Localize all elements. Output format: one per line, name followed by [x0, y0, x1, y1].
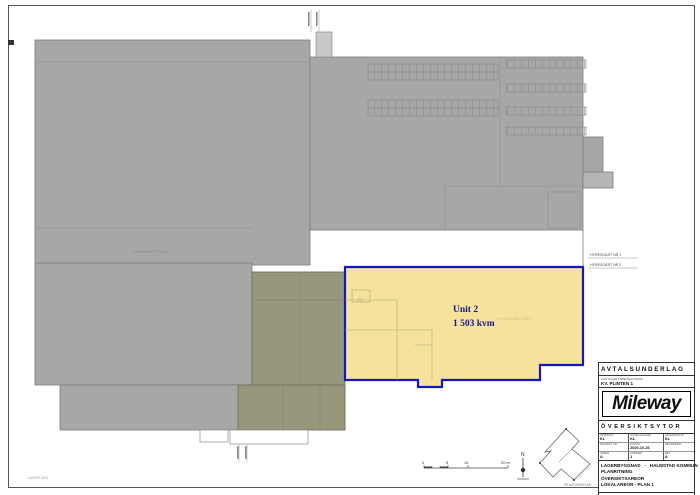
- cell-value: KL: [665, 437, 693, 441]
- tenant-legend: HYRESGÄST NR 1 HYRESGÄST NR 2: [588, 253, 638, 268]
- bottom-dimension-marks: [237, 444, 247, 462]
- grid-cell: PROJEKT NR: [599, 443, 629, 452]
- logo-box: Mileway: [599, 388, 694, 421]
- mileway-logo: Mileway: [602, 391, 691, 417]
- legend-row-2: HYRESGÄST NR 2: [590, 263, 621, 267]
- grid-cell: DATUM 2020-10-26: [629, 443, 664, 452]
- east-annex: [583, 172, 613, 188]
- title-block: AVTALSUNDERLAG FASTIGHETSBETECKNING KV. …: [598, 362, 695, 495]
- scale-tick-5: 5: [446, 460, 449, 465]
- annex-area-lower: [238, 385, 345, 430]
- property-designation: FASTIGHETSBETECKNING KV. PLINTEN 1: [599, 376, 694, 389]
- tenant-label-area2: HYRESGÄST NR 2: [497, 316, 533, 321]
- unit2-name: Unit 2: [453, 304, 495, 318]
- scale-tick-0: 0: [422, 460, 425, 465]
- unit2-label: Unit 2 1 503 kvm: [453, 304, 495, 332]
- cell-value: 2020-10-26: [630, 446, 662, 450]
- grid-cell: REVIDERING: [664, 443, 694, 452]
- description-line: LAGERBYGGNAD - HALMSTAD KOMMUN: [601, 463, 692, 470]
- description-line: LOKALAREOR - PLAN 1: [601, 482, 692, 489]
- cell-label: REVIDERING: [665, 443, 693, 446]
- annex-area-upper: [252, 272, 345, 385]
- section-title: ÖVERSIKTSYTOR: [599, 421, 694, 434]
- top-dimension-marks: [308, 10, 319, 32]
- document-type: AVTALSUNDERLAG: [599, 363, 694, 376]
- grid-cell: GRANSKAD AV KL: [664, 434, 694, 443]
- cell-label: PROJEKT NR: [600, 443, 627, 446]
- scale-tick-10: 10: [464, 460, 469, 465]
- grid-cell: NUMMER 1: [629, 452, 664, 460]
- building-mass-northwest: [35, 40, 310, 265]
- titleblock-grid: UPPDRAG KL HANDLÄGGARE KL GRANSKAD AV KL…: [599, 434, 694, 461]
- property-value: KV. PLINTEN 1: [601, 381, 692, 386]
- roof-structure: [316, 32, 332, 57]
- building-mass-southwest: [35, 263, 252, 385]
- scale-bar: 0 5 10 20 m: [422, 460, 511, 468]
- description-line: PLANRITNING: [601, 469, 692, 476]
- cell-value: A: [600, 455, 627, 459]
- scale-tick-20m: 20 m: [501, 460, 511, 465]
- building-mass-northeast: [310, 57, 583, 230]
- key-plan: SITUATIONSPLAN: [539, 428, 592, 487]
- cell-value: KL: [630, 437, 662, 441]
- grid-cell: UPPDRAG KL: [599, 434, 629, 443]
- tenant-label-area1: HYRESGÄST NR 1: [133, 249, 169, 254]
- corner-note: LAGER 2011: [28, 476, 48, 480]
- drawing-sheet: HYRESGÄST NR 1 HYRESGÄST NR 2 HYRESGÄST …: [0, 0, 700, 495]
- grid-cell: SKEDE A: [599, 452, 629, 460]
- cell-value: 1: [630, 455, 662, 459]
- cell-value: A: [665, 455, 693, 459]
- border-tick: [8, 40, 14, 45]
- north-arrow-icon: N: [517, 452, 529, 479]
- unit2-size: 1 503 kvm: [453, 318, 495, 332]
- grid-cell: HANDLÄGGARE KL: [629, 434, 664, 443]
- building-mass-south: [60, 385, 240, 430]
- description-line: ÖVERSIKTSAREOR: [601, 476, 692, 483]
- legend-row-1: HYRESGÄST NR 1: [590, 253, 621, 257]
- grid-cell: BET A: [664, 452, 694, 460]
- floor-plan: HYRESGÄST NR 1 HYRESGÄST NR 2 HYRESGÄST …: [0, 0, 700, 495]
- key-plan-caption: SITUATIONSPLAN: [564, 483, 592, 487]
- outbuilding-b: [200, 430, 228, 442]
- cell-value: KL: [600, 437, 627, 441]
- outbuilding-a: [230, 430, 308, 444]
- north-label: N: [521, 452, 525, 458]
- drawing-description: LAGERBYGGNAD - HALMSTAD KOMMUN PLANRITNI…: [599, 461, 694, 494]
